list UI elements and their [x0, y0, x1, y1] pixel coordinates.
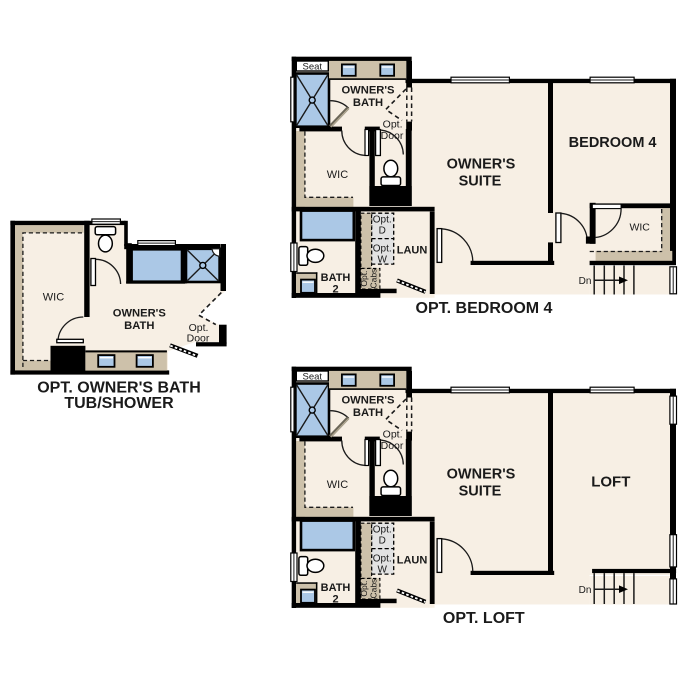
svg-text:Opt.: Opt.	[373, 553, 392, 564]
svg-text:OPT. LOFT: OPT. LOFT	[443, 610, 525, 627]
svg-text:W: W	[377, 564, 387, 575]
svg-text:OWNER'S: OWNER'S	[113, 307, 167, 319]
svg-text:Cabs: Cabs	[368, 579, 378, 599]
svg-text:BATH: BATH	[353, 97, 383, 109]
svg-text:TUB/SHOWER: TUB/SHOWER	[64, 395, 174, 412]
svg-text:Seat: Seat	[303, 61, 323, 72]
svg-text:D: D	[379, 536, 386, 547]
svg-text:Opt.: Opt.	[383, 429, 403, 441]
svg-text:OWNER'S: OWNER'S	[341, 394, 395, 406]
svg-text:BATH: BATH	[321, 272, 351, 284]
svg-text:D: D	[379, 226, 386, 237]
svg-text:Opt.: Opt.	[383, 119, 403, 131]
svg-text:Opt.: Opt.	[373, 243, 392, 254]
svg-text:OWNER'S: OWNER'S	[447, 157, 516, 173]
svg-text:Opt.: Opt.	[373, 215, 392, 226]
svg-text:WIC: WIC	[327, 169, 348, 181]
svg-text:LOFT: LOFT	[591, 473, 630, 490]
svg-text:SUITE: SUITE	[459, 484, 502, 500]
svg-text:Dn: Dn	[579, 585, 592, 596]
svg-text:SUITE: SUITE	[459, 174, 502, 190]
svg-text:BEDROOM 4: BEDROOM 4	[569, 135, 657, 151]
svg-text:Seat: Seat	[303, 371, 323, 382]
svg-text:WIC: WIC	[327, 479, 348, 491]
svg-text:Door: Door	[381, 130, 404, 142]
svg-text:2: 2	[332, 593, 338, 605]
svg-text:OPT. BEDROOM 4: OPT. BEDROOM 4	[416, 300, 553, 317]
svg-text:Dn: Dn	[579, 276, 592, 287]
svg-text:WIC: WIC	[43, 292, 64, 304]
svg-text:OWNER'S: OWNER'S	[341, 84, 395, 96]
svg-text:W: W	[377, 254, 387, 265]
svg-text:Door: Door	[187, 333, 210, 345]
svg-text:BATH: BATH	[321, 582, 351, 594]
svg-text:LAUN: LAUN	[397, 555, 428, 567]
svg-text:Door: Door	[381, 440, 404, 452]
svg-text:BATH: BATH	[124, 320, 154, 332]
svg-text:Cabs: Cabs	[368, 269, 378, 289]
svg-text:WIC: WIC	[629, 221, 650, 233]
svg-text:OWNER'S: OWNER'S	[447, 467, 516, 483]
svg-text:2: 2	[332, 283, 338, 295]
svg-text:BATH: BATH	[353, 407, 383, 419]
svg-text:LAUN: LAUN	[397, 245, 428, 257]
svg-text:Opt.: Opt.	[373, 525, 392, 536]
